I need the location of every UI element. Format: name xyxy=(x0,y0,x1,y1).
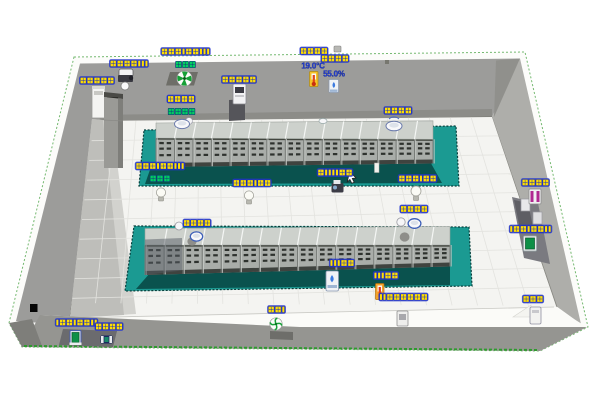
svg-text:19.0°C: 19.0°C xyxy=(301,62,325,71)
svg-text:55.0%: 55.0% xyxy=(323,70,345,79)
